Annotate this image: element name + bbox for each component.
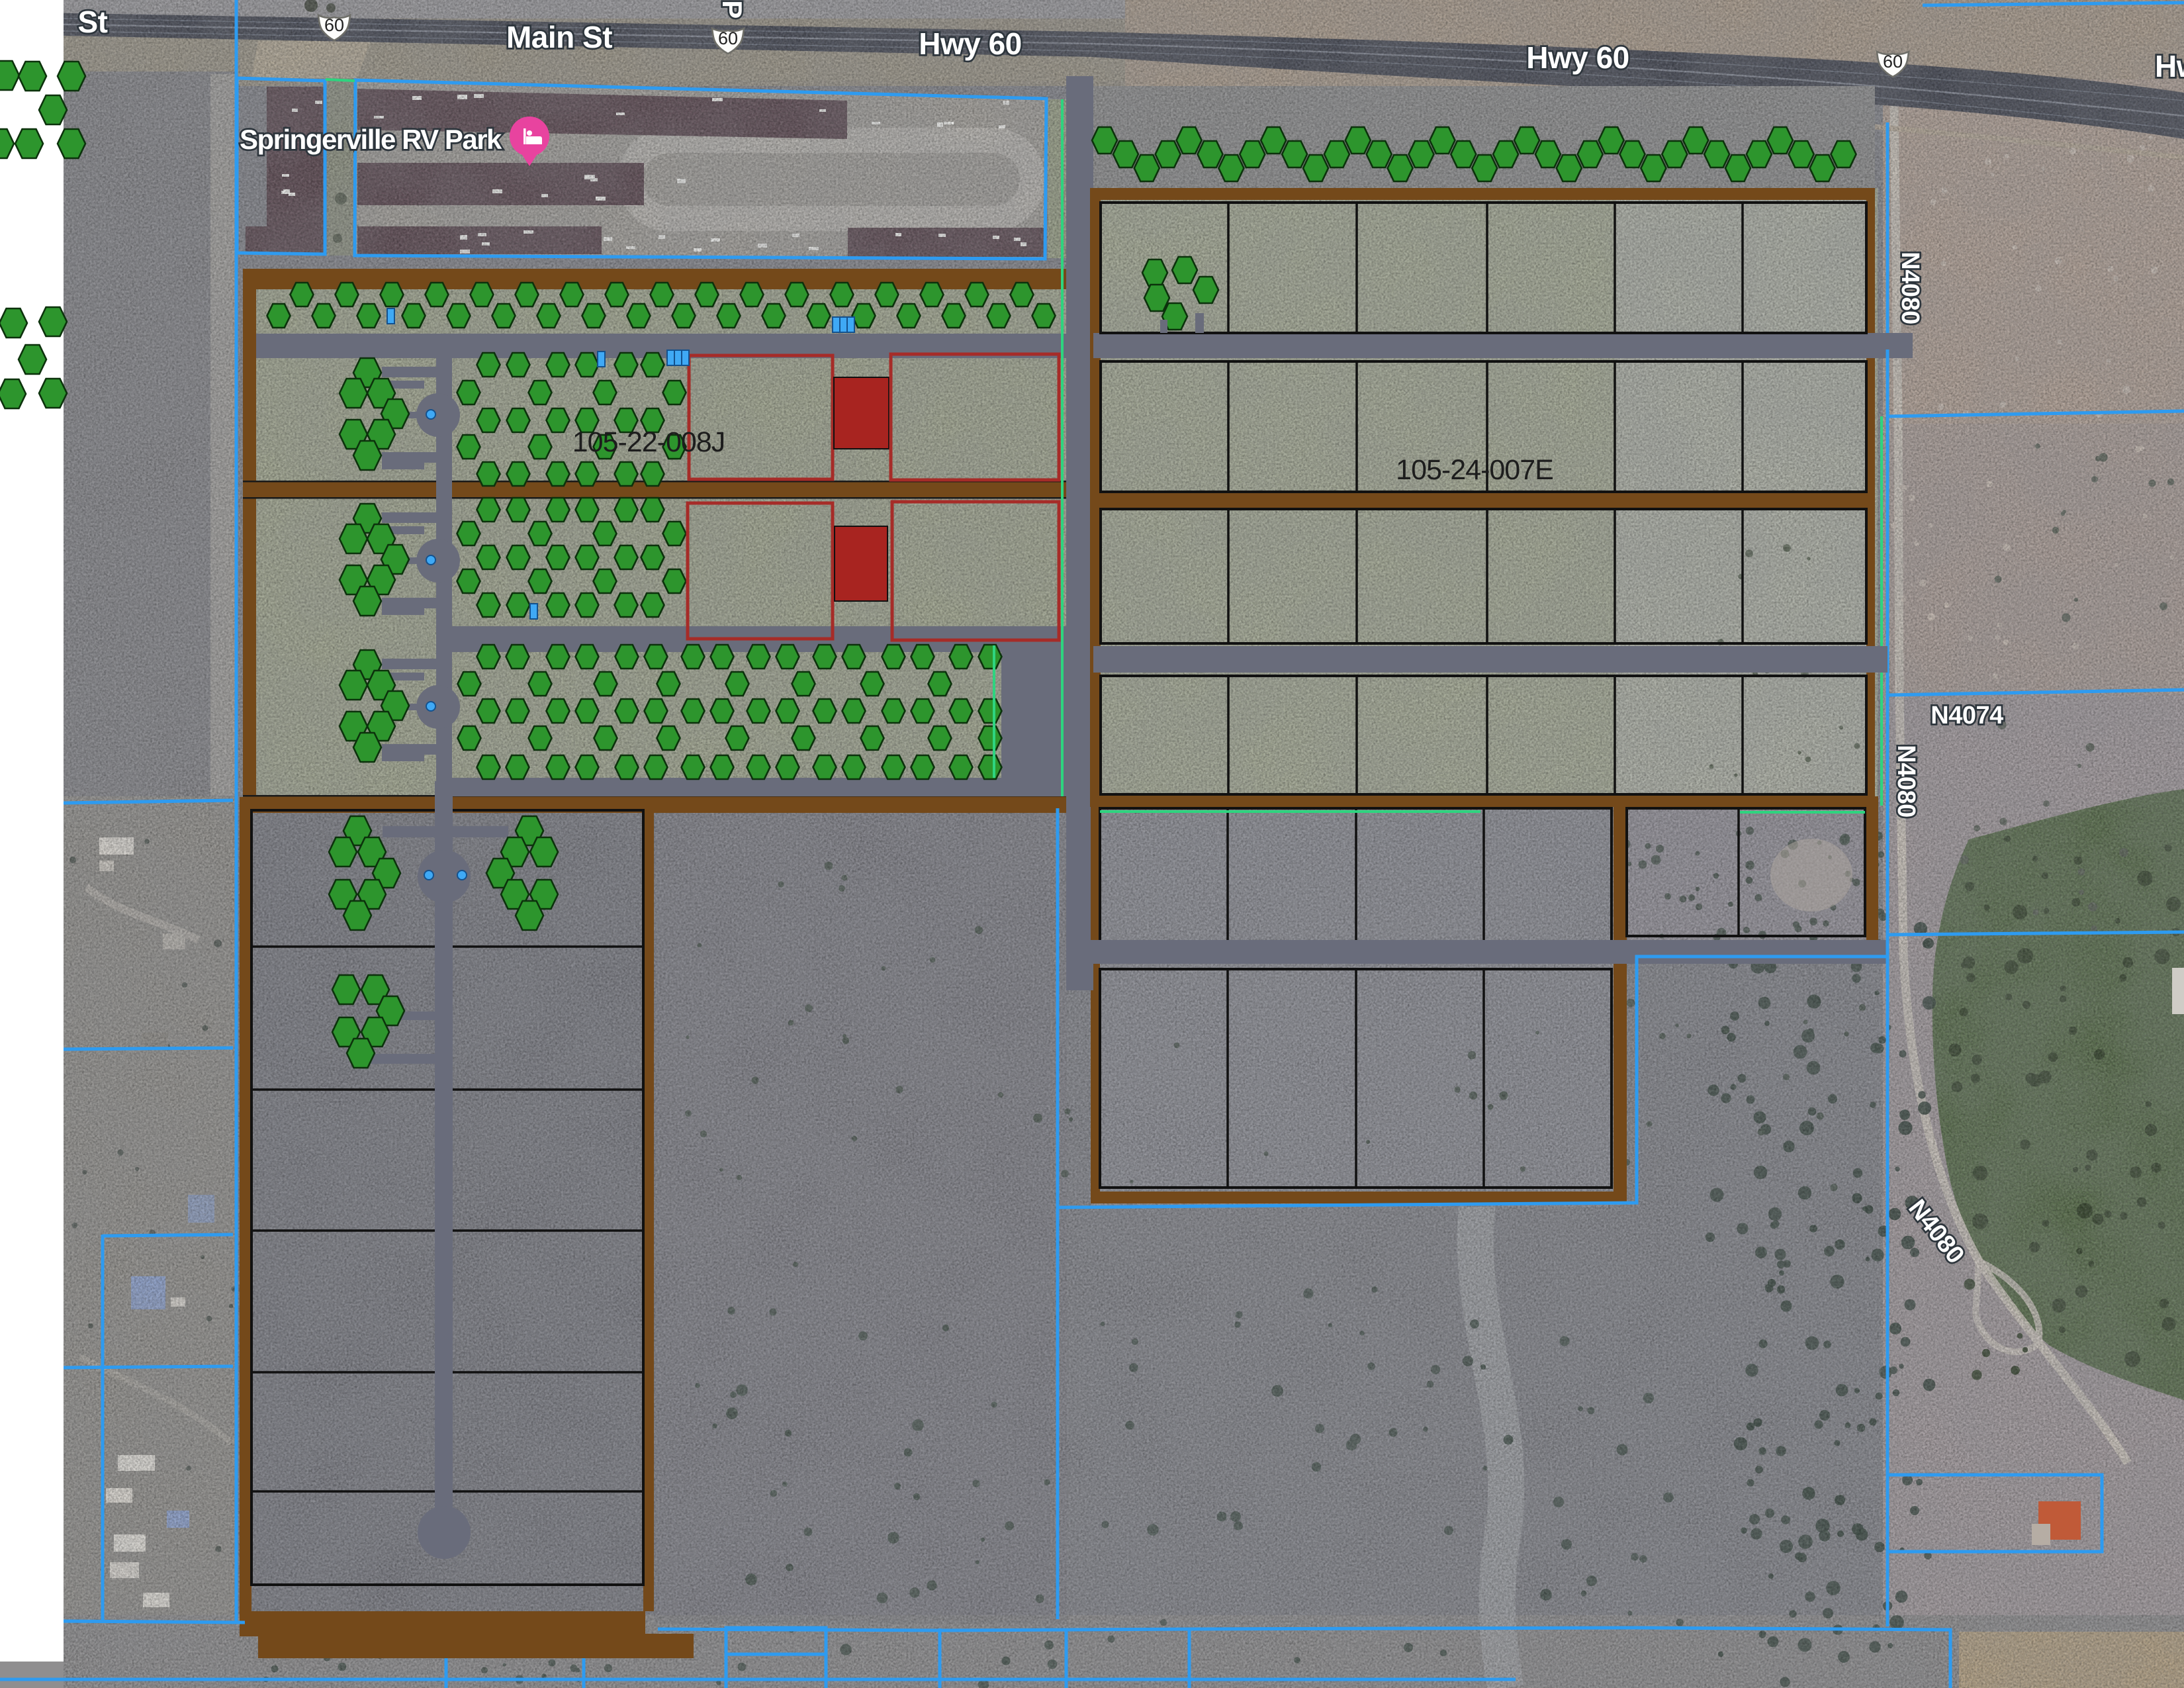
- svg-text:Main St: Main St: [506, 20, 612, 54]
- svg-text:Hw: Hw: [2155, 49, 2184, 83]
- svg-text:60: 60: [324, 15, 344, 35]
- svg-text:Springerville RV Park: Springerville RV Park: [240, 124, 502, 155]
- svg-text:N4080: N4080: [1892, 745, 1920, 817]
- svg-text:60: 60: [718, 28, 738, 48]
- svg-text:N4080: N4080: [1896, 252, 1924, 324]
- svg-text:P: P: [717, 0, 748, 19]
- svg-text:Hwy 60: Hwy 60: [919, 26, 1022, 61]
- svg-text:60: 60: [1883, 52, 1903, 71]
- svg-text:105-22-008J: 105-22-008J: [572, 426, 725, 458]
- svg-text:Hwy 60: Hwy 60: [1526, 40, 1629, 75]
- svg-text:St: St: [78, 5, 108, 39]
- svg-text:N4074: N4074: [1931, 702, 2003, 729]
- svg-text:105-24-007E: 105-24-007E: [1396, 454, 1553, 486]
